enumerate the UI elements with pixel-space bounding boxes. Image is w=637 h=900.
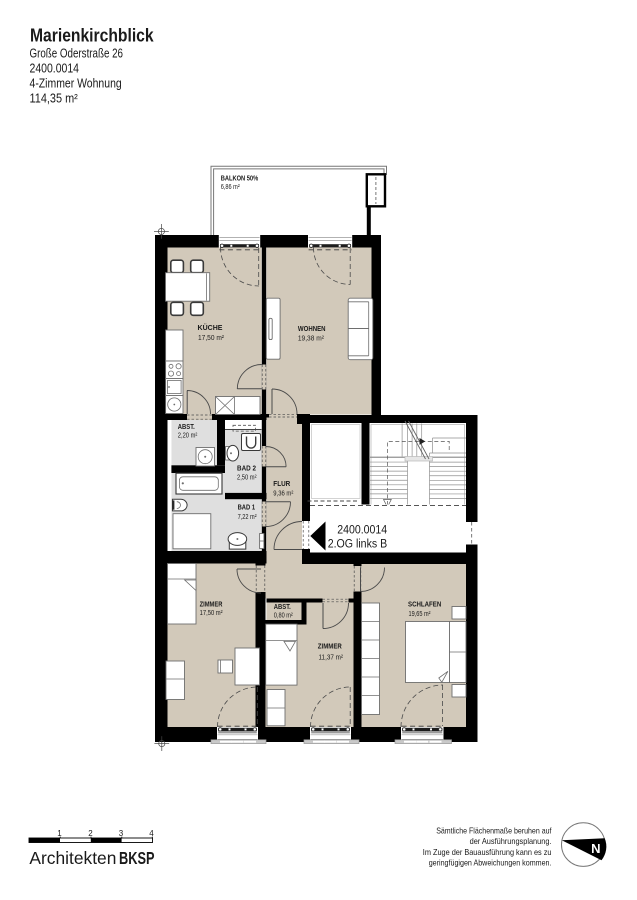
svg-text:Marienkirchblick: Marienkirchblick <box>30 26 154 46</box>
svg-text:4-Zimmer Wohnung: 4-Zimmer Wohnung <box>30 76 122 91</box>
svg-text:ZIMMER: ZIMMER <box>318 644 342 651</box>
svg-text:BALKON 50%: BALKON 50% <box>221 176 259 183</box>
svg-text:FLUR: FLUR <box>273 481 290 488</box>
svg-text:3: 3 <box>119 829 124 838</box>
svg-text:ZIMMER: ZIMMER <box>200 602 223 609</box>
svg-text:Große Oderstraße 26: Große Oderstraße 26 <box>30 46 124 61</box>
svg-text:der Ausführungsplanung.: der Ausführungsplanung. <box>470 837 552 846</box>
svg-text:KÜCHE: KÜCHE <box>198 323 223 332</box>
svg-text:19,65 m²: 19,65 m² <box>409 611 432 618</box>
svg-text:19,38 m²: 19,38 m² <box>298 336 325 343</box>
svg-text:2400.0014: 2400.0014 <box>337 525 388 537</box>
svg-text:BAD 1: BAD 1 <box>238 505 256 512</box>
svg-text:ABST.: ABST. <box>178 424 195 431</box>
svg-text:N: N <box>591 841 600 856</box>
svg-text:BAD 2: BAD 2 <box>237 465 256 472</box>
svg-text:Architekten: Architekten <box>29 848 116 868</box>
svg-text:0,80 m²: 0,80 m² <box>274 612 294 619</box>
svg-text:BKSP: BKSP <box>119 848 155 868</box>
svg-text:ABST.: ABST. <box>274 604 291 611</box>
svg-text:SCHLAFEN: SCHLAFEN <box>408 602 441 609</box>
svg-text:1: 1 <box>57 829 62 838</box>
svg-text:7,22 m²: 7,22 m² <box>238 514 258 521</box>
svg-text:2,20 m²: 2,20 m² <box>178 433 198 440</box>
svg-text:114,35 m²: 114,35 m² <box>30 91 79 106</box>
svg-text:6,86 m²: 6,86 m² <box>221 184 241 191</box>
svg-text:Sämtliche Flächenmaße beruhen: Sämtliche Flächenmaße beruhen auf <box>436 827 552 836</box>
svg-text:4: 4 <box>149 829 154 838</box>
svg-text:2400.0014: 2400.0014 <box>30 61 80 76</box>
svg-text:9,36 m²: 9,36 m² <box>273 490 294 497</box>
svg-text:2: 2 <box>88 829 93 838</box>
svg-text:17,50 m²: 17,50 m² <box>200 610 224 617</box>
svg-text:geringfügigen Abweichungen kom: geringfügigen Abweichungen kommen. <box>429 859 552 868</box>
svg-text:WOHNEN: WOHNEN <box>298 326 326 333</box>
svg-text:Im Zuge der Bauausführung kann: Im Zuge der Bauausführung kann es zu <box>423 848 552 857</box>
svg-text:17,50 m²: 17,50 m² <box>198 335 225 342</box>
svg-text:11,37 m²: 11,37 m² <box>319 654 344 661</box>
svg-text:2,50 m²: 2,50 m² <box>237 474 257 481</box>
svg-text:2.OG links B: 2.OG links B <box>328 538 388 550</box>
